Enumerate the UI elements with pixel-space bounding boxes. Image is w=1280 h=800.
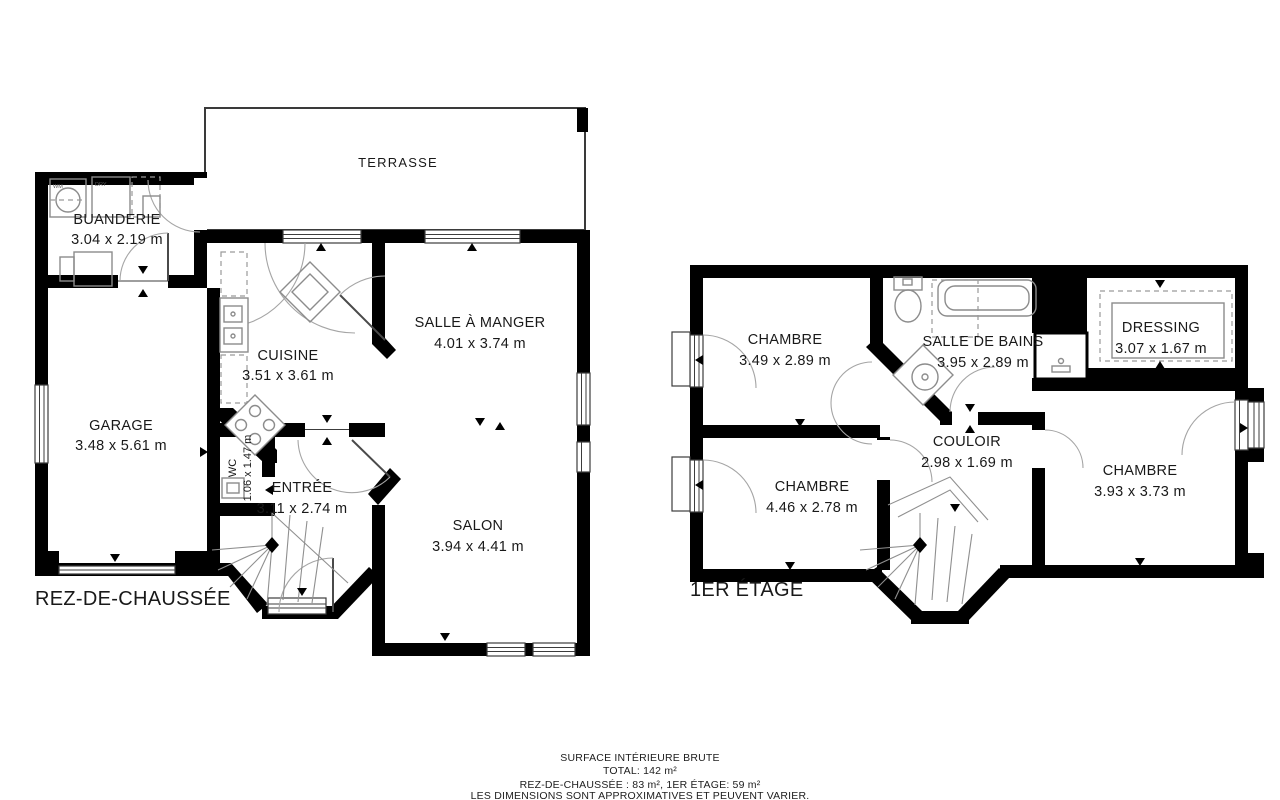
footer-surface-title: SURFACE INTÉRIEURE BRUTE: [560, 751, 719, 764]
floor-label-first: 1ER ÉTAGE: [690, 578, 803, 601]
room-label-wc: WC: [227, 459, 239, 477]
room-label-couloir: COULOIR: [933, 434, 1001, 450]
first-floor-plan: CHAMBRE 3.49 x 2.89 m SALLE DE BAINS 3.9…: [672, 265, 1264, 624]
dryer-label: DRY: [95, 182, 107, 188]
room-dims-garage: 3.48 x 5.61 m: [75, 438, 167, 454]
room-label-chambre-1: CHAMBRE: [748, 332, 823, 348]
wc-sink-icon: [222, 478, 244, 498]
room-dims-chambre-3: 3.93 x 3.73 m: [1094, 484, 1186, 500]
stove-icon: [225, 395, 285, 455]
bathtub-icon: [932, 280, 1036, 337]
room-label-chambre-2: CHAMBRE: [775, 479, 850, 495]
room-dims-entree: 3.11 x 2.74 m: [257, 501, 348, 517]
room-dims-cuisine: 3.51 x 3.61 m: [242, 368, 334, 384]
footer-total: TOTAL: 142 m²: [603, 765, 677, 777]
bathroom-vanity-icon: [893, 345, 953, 405]
room-label-salle-a-manger: SALLE À MANGER: [415, 314, 546, 331]
room-dims-buanderie: 3.04 x 2.19 m: [71, 232, 163, 248]
room-label-buanderie: BUANDERIE: [73, 212, 160, 228]
room-label-salle-de-bains: SALLE DE BAINS: [922, 334, 1043, 350]
ground-floor-windows: [35, 178, 590, 656]
footer-disclaimer: LES DIMENSIONS SONT APPROXIMATIVES ET PE…: [471, 790, 810, 800]
ground-floor-markers: [110, 243, 505, 641]
floor-label-ground: REZ-DE-CHAUSSÉE: [35, 587, 231, 610]
room-dims-dressing: 3.07 x 1.67 m: [1115, 341, 1207, 357]
toilet-icon: [894, 277, 922, 322]
room-label-dressing: DRESSING: [1122, 320, 1200, 336]
room-label-salon: SALON: [453, 518, 504, 534]
room-label-chambre-3: CHAMBRE: [1103, 463, 1178, 479]
washer-label: WM: [53, 184, 63, 190]
room-dims-wc: 1.06 x 1.47 m: [242, 435, 254, 502]
floor-plan-svg: WM DRY: [0, 0, 1280, 800]
ground-floor-stairs-icon: [212, 513, 348, 605]
floor-plan-document: WM DRY: [0, 0, 1280, 800]
room-dims-couloir: 2.98 x 1.69 m: [921, 455, 1013, 471]
footer-notes: SURFACE INTÉRIEURE BRUTE TOTAL: 142 m² R…: [471, 751, 810, 800]
room-dims-chambre-2: 4.46 x 2.78 m: [766, 500, 858, 516]
room-label-garage: GARAGE: [89, 418, 153, 434]
room-dims-salle-a-manger: 4.01 x 3.74 m: [434, 336, 526, 352]
room-dims-salle-de-bains: 3.95 x 2.89 m: [937, 355, 1029, 371]
room-dims-salon: 3.94 x 4.41 m: [432, 539, 524, 555]
room-dims-chambre-1: 3.49 x 2.89 m: [739, 353, 831, 369]
room-label-cuisine: CUISINE: [258, 348, 319, 364]
room-label-terrasse: TERRASSE: [358, 155, 438, 170]
room-label-entree: ENTRÉE: [272, 479, 333, 496]
ground-floor-plan: WM DRY: [35, 108, 590, 656]
